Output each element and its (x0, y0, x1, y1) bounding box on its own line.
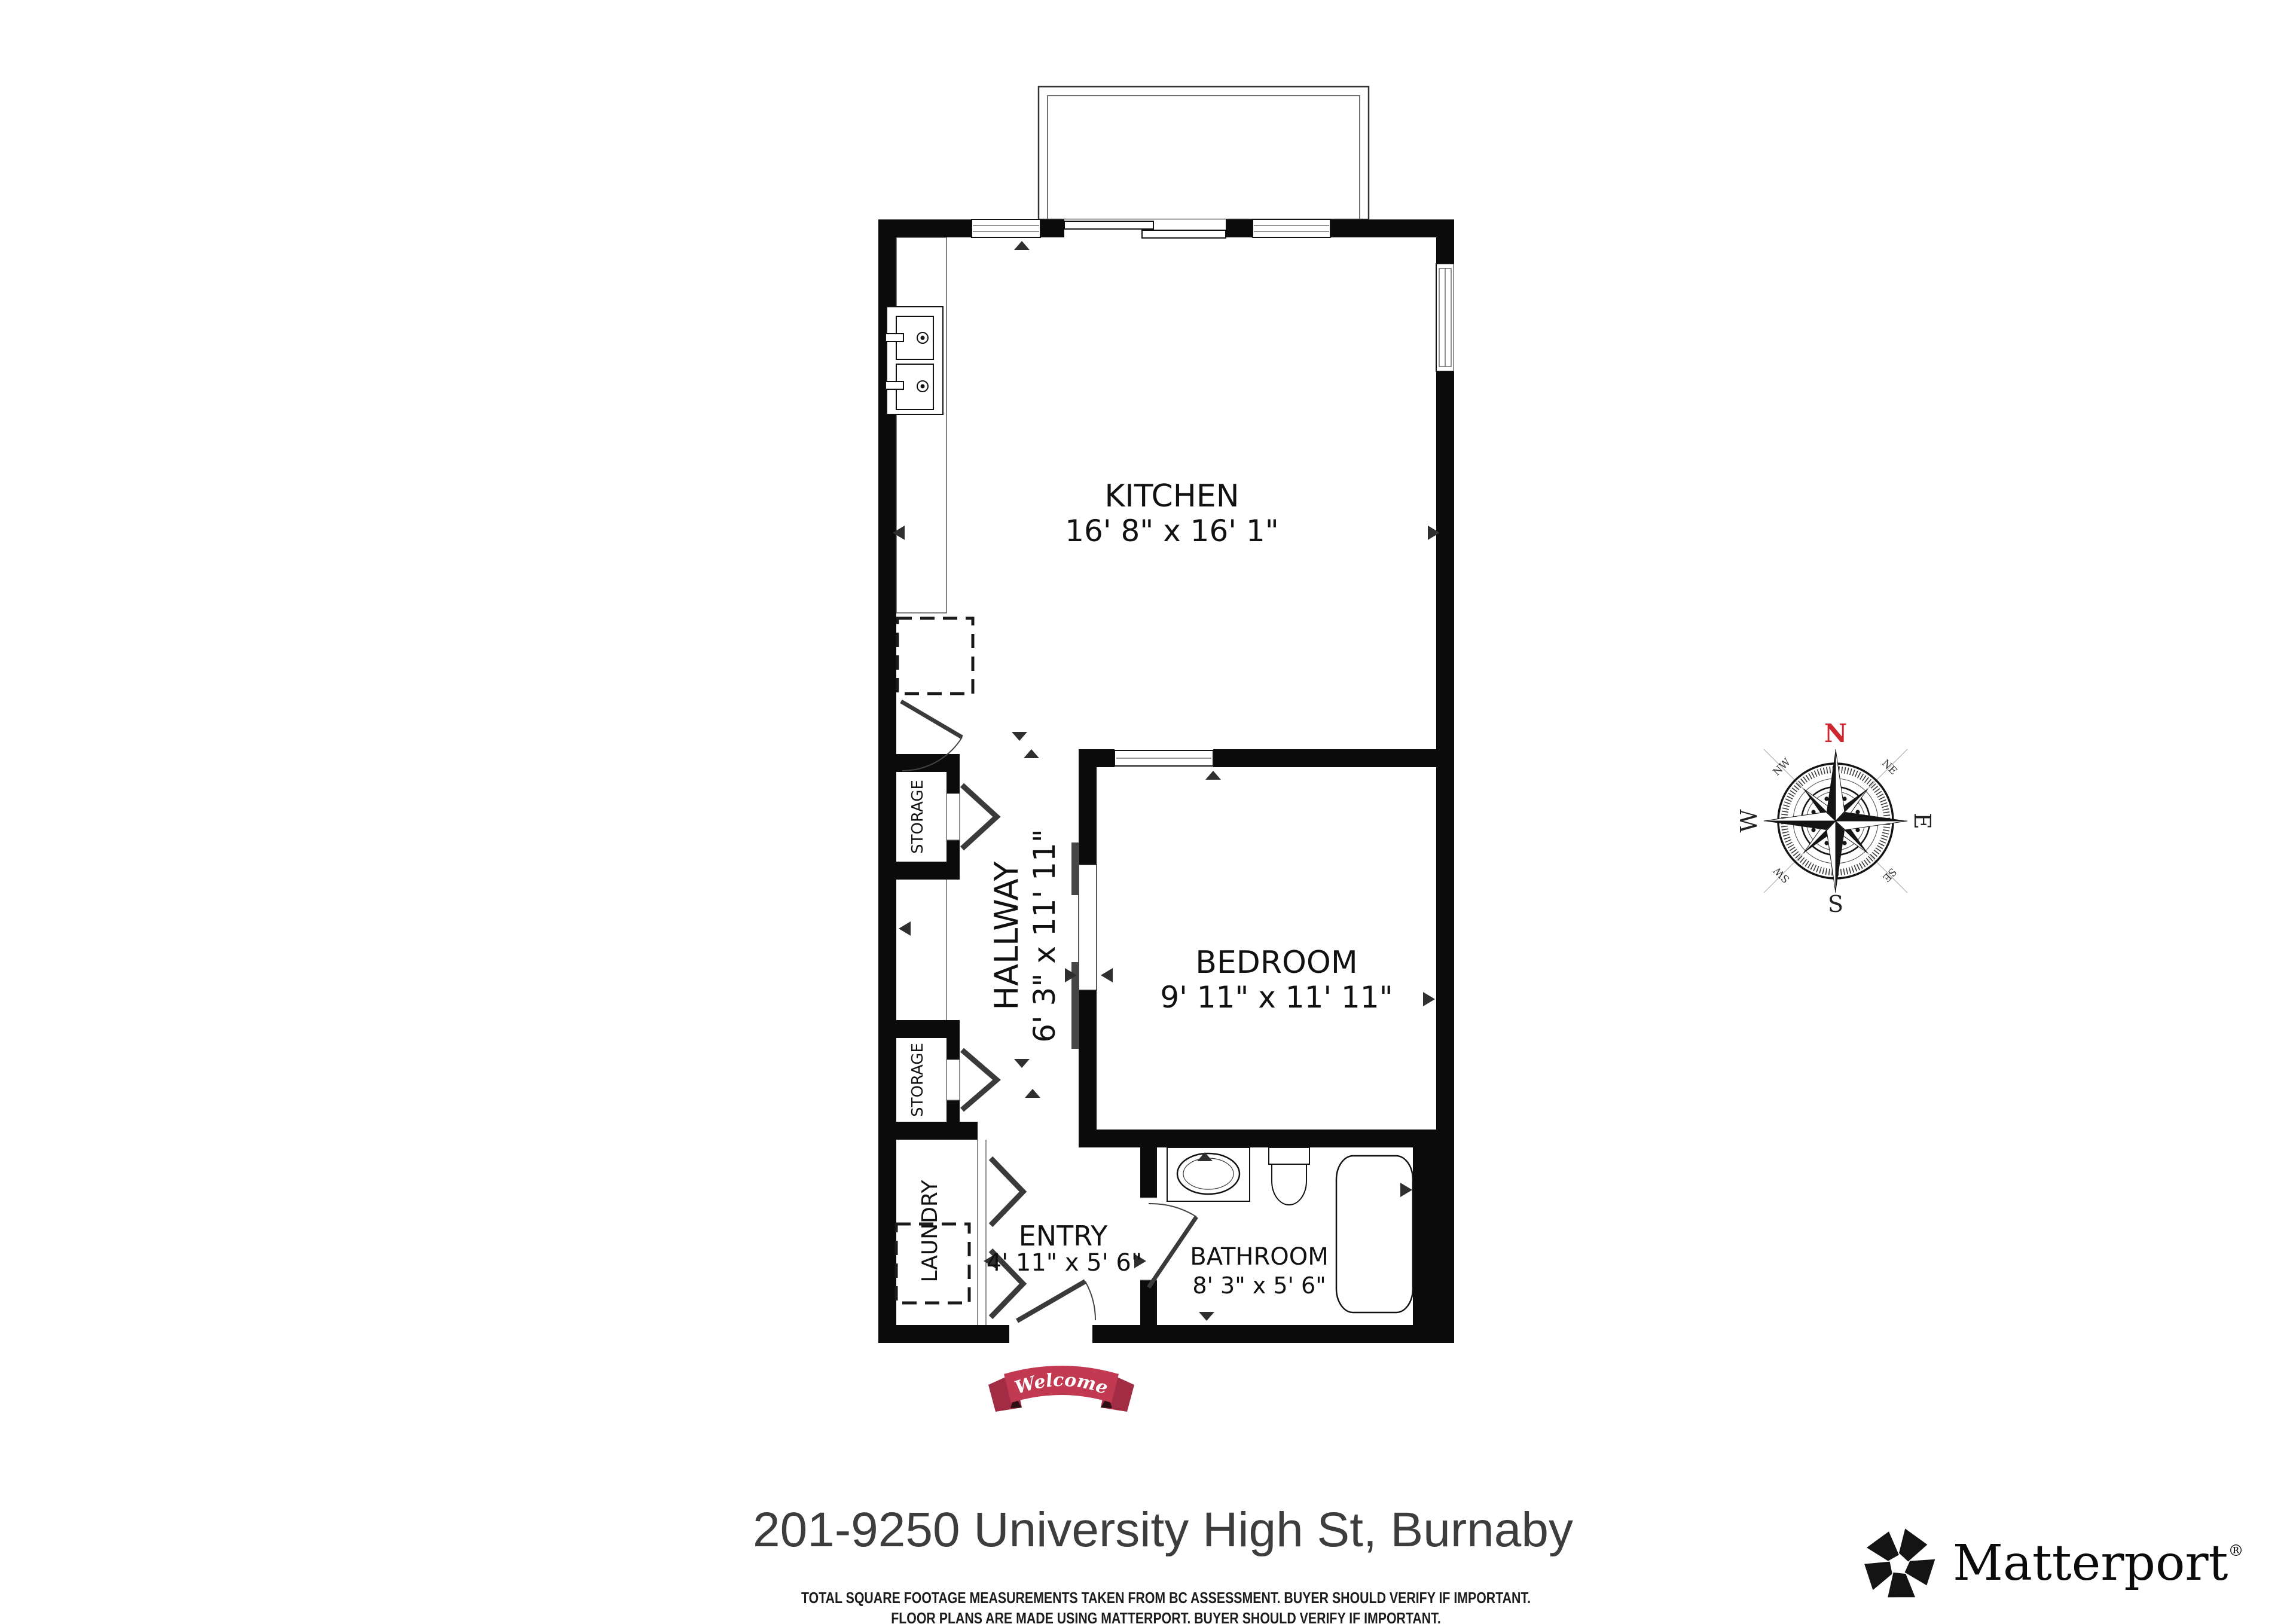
kitchen-label: KITCHEN (1104, 478, 1239, 514)
storage-top-bifold-door (962, 785, 997, 848)
matterport-logo-icon (1861, 1525, 1937, 1601)
bathtub (1336, 1156, 1413, 1312)
floorplan-page: KITCHEN 16' 8" x 16' 1" BEDROOM 9' 11" x… (0, 0, 2296, 1624)
bathroom-label: BATHROOM (1190, 1243, 1328, 1271)
kitchen-dims: 16' 8" x 16' 1" (1065, 514, 1279, 548)
welcome-banner: Welcome (984, 1353, 1139, 1417)
bathroom-sink (1167, 1147, 1250, 1201)
entry-dims: 4' 11" x 5' 6" (987, 1249, 1143, 1277)
sliding-door-balcony (1064, 219, 1226, 238)
toilet (1269, 1147, 1309, 1205)
storage-top-label: STORAGE (909, 780, 927, 854)
hallway-dims: 6' 3" x 11' 11" (1027, 829, 1062, 1043)
balcony-rail (1039, 87, 1369, 219)
disclaimer-line-1: TOTAL SQUARE FOOTAGE MEASUREMENTS TAKEN … (801, 1588, 1531, 1608)
registered-mark: ® (2228, 1542, 2244, 1560)
address-title: 201-9250 University High St, Burnaby (753, 1502, 1573, 1558)
interior-window-bedroom (1115, 750, 1213, 766)
compass-rose: N E S W NE NW SE SW (1737, 722, 1934, 920)
compass-north-label: N (1824, 722, 1847, 748)
compass-east-label: E (1909, 813, 1934, 829)
entry-label: ENTRY (1019, 1220, 1109, 1252)
laundry-label: LAUNDRY (918, 1179, 942, 1282)
floorplan-drawing: KITCHEN 16' 8" x 16' 1" BEDROOM 9' 11" x… (878, 84, 1454, 1343)
window-right-wall (1436, 264, 1454, 371)
bedroom-dims: 9' 11" x 11' 11" (1160, 980, 1393, 1015)
disclaimer-line-2: FLOOR PLANS ARE MADE USING MATTERPORT. B… (801, 1608, 1531, 1624)
hallway-label: HALLWAY (988, 861, 1025, 1011)
storage-bottom-bifold-door (962, 1050, 997, 1110)
kitchen-counter (896, 237, 947, 613)
bathroom-dims: 8' 3" x 5' 6" (1192, 1272, 1326, 1299)
compass-west-label: W (1737, 809, 1762, 832)
kitchen-appliance-dashed (897, 618, 973, 694)
compass-south-label: S (1828, 891, 1843, 917)
window-top-left (972, 219, 1040, 237)
window-top-right (1253, 219, 1330, 237)
disclaimer: TOTAL SQUARE FOOTAGE MEASUREMENTS TAKEN … (801, 1588, 1531, 1624)
kitchen-sink (886, 307, 943, 414)
front-door (1009, 1281, 1095, 1343)
matterport-wordmark: Matterport (1953, 1535, 2228, 1592)
matterport-logo-text: Matterport® (1953, 1535, 2244, 1592)
laundry-bifold-door-top (991, 1158, 1023, 1225)
bathroom-door (1140, 1198, 1196, 1287)
bedroom-label: BEDROOM (1195, 945, 1357, 981)
storage-bottom-label: STORAGE (909, 1043, 927, 1117)
matterport-brand: Matterport® (1861, 1525, 2244, 1601)
